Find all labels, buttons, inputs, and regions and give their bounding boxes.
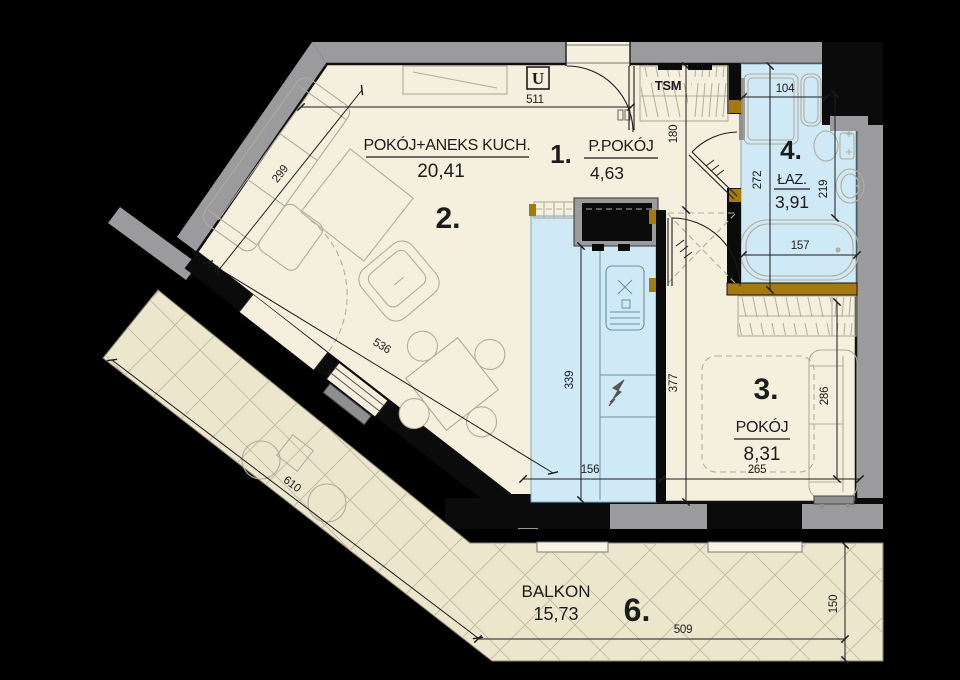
room3-name: POKÓJ [736, 417, 789, 436]
bath-bottom-wall [727, 283, 857, 295]
room2-area: 20,41 [417, 161, 465, 182]
dim-265: 265 [748, 464, 767, 476]
dim-511: 511 [526, 94, 544, 106]
room3-number: 3. [753, 373, 778, 406]
unit-symbol-letter: U [532, 69, 544, 88]
door-frame [649, 210, 656, 224]
door-frame [649, 278, 656, 292]
dim-219: 219 [818, 180, 830, 199]
dim-157: 157 [791, 240, 810, 252]
door-frame [729, 100, 741, 113]
room3-area: 8,31 [744, 444, 781, 465]
window-sill [537, 542, 608, 552]
shaft-label: TSM [655, 78, 682, 93]
room4-area: 3,91 [775, 192, 809, 212]
dim-377: 377 [668, 374, 680, 393]
dim-180: 180 [668, 125, 680, 144]
dim-104: 104 [776, 83, 795, 95]
room1-area: 4,63 [590, 163, 624, 183]
shaft-block [822, 42, 883, 125]
room2-number: 2. [435, 202, 460, 235]
balcony-name: BALKON [522, 582, 591, 601]
room1-number: 1. [550, 139, 572, 169]
dim-156: 156 [581, 464, 600, 476]
dim-509: 509 [674, 624, 693, 636]
radiator [814, 496, 854, 504]
room1-name: P.POKÓJ [588, 136, 653, 155]
door-frame [529, 204, 536, 216]
dim-286: 286 [819, 387, 831, 406]
balcony-number: 6. [624, 592, 651, 628]
room2-name: POKÓJ+ANEKS KUCH. [364, 135, 531, 154]
dim-150: 150 [828, 595, 840, 614]
room4-number: 4. [780, 135, 802, 165]
dim-339: 339 [564, 371, 576, 390]
floor-plan-canvas: TSM [0, 0, 960, 680]
unit-symbol: U [527, 67, 549, 89]
balcony-area: 15,73 [533, 604, 578, 624]
dim-272: 272 [752, 171, 764, 190]
window-sill [708, 542, 802, 552]
kitchen-annex [529, 198, 658, 502]
room4-name: ŁAZ. [777, 172, 806, 188]
